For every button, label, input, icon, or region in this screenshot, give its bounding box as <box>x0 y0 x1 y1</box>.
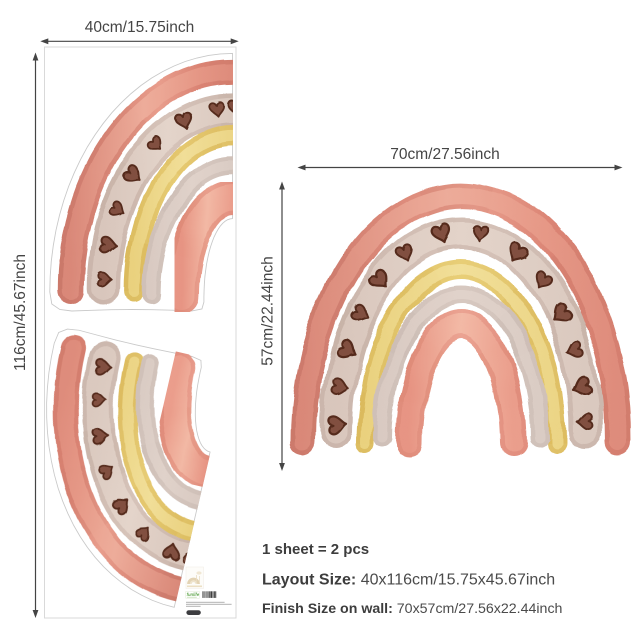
svg-text:Layout Size: 40x116cm/15.75x45: Layout Size: 40x116cm/15.75x45.67inch <box>262 572 555 589</box>
svg-text:116cm/45.67inch: 116cm/45.67inch <box>12 254 29 371</box>
svg-text:57cm/22.44inch: 57cm/22.44inch <box>260 256 277 365</box>
svg-text:funlife: funlife <box>187 592 200 597</box>
svg-text:40cm/15.75inch: 40cm/15.75inch <box>85 19 194 36</box>
svg-text:70cm/27.56inch: 70cm/27.56inch <box>390 146 499 163</box>
svg-text:Finish Size on wall: 70x57cm/2: Finish Size on wall: 70x57cm/27.56x22.44… <box>262 601 562 617</box>
svg-text:1 sheet = 2 pcs: 1 sheet = 2 pcs <box>262 541 369 558</box>
